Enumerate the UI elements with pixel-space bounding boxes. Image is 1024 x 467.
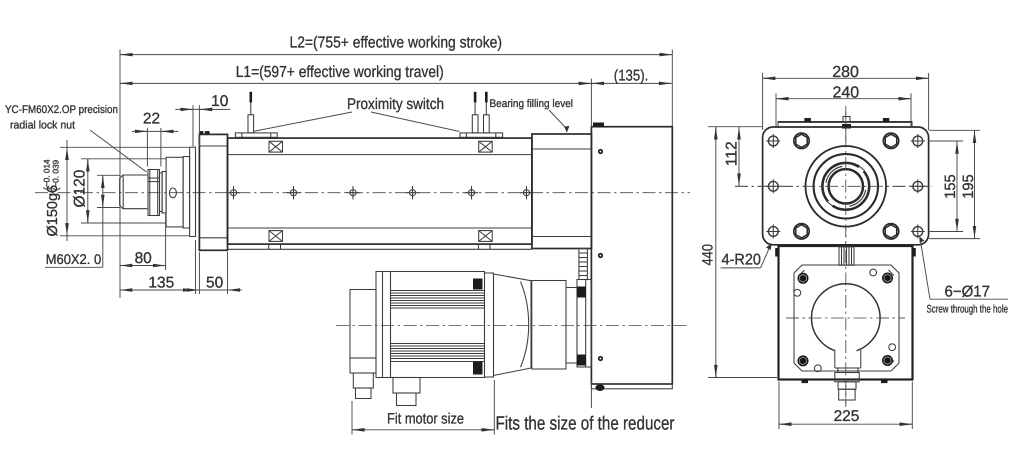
svg-text:112: 112 [724, 141, 741, 166]
svg-text:440: 440 [700, 244, 717, 266]
svg-text:225: 225 [834, 408, 860, 425]
svg-text:radial lock nut: radial lock nut [10, 120, 75, 132]
svg-text:YC-FM60X2.OP precision: YC-FM60X2.OP precision [5, 104, 118, 116]
svg-text:Ø150g6: Ø150g6 [45, 185, 61, 237]
svg-text:240: 240 [832, 84, 859, 101]
svg-text:Fits the size of the reducer: Fits the size of the reducer [496, 414, 676, 435]
svg-text:10: 10 [211, 93, 229, 110]
svg-text:Fit motor size: Fit motor size [387, 411, 464, 428]
svg-text:L2=(755+ effective working str: L2=(755+ effective working stroke) [290, 35, 503, 52]
svg-text:135: 135 [148, 274, 174, 291]
svg-text:22: 22 [143, 111, 160, 128]
svg-text:(−0. 039: (−0. 039 [51, 159, 61, 190]
svg-text:Ø120: Ø120 [72, 169, 89, 207]
svg-text:6−Ø17: 6−Ø17 [945, 284, 991, 301]
svg-text:80: 80 [135, 250, 153, 267]
svg-text:155: 155 [942, 174, 959, 199]
svg-text:(135).: (135). [614, 67, 649, 84]
svg-text:M60X2. 0: M60X2. 0 [46, 251, 102, 267]
svg-text:Proximity switch: Proximity switch [347, 96, 444, 113]
svg-text:Screw through the hole: Screw through the hole [927, 304, 1009, 316]
svg-text:195: 195 [960, 174, 977, 199]
svg-text:4-R20: 4-R20 [722, 251, 762, 268]
svg-text:Bearing filling level: Bearing filling level [490, 98, 574, 110]
svg-text:280: 280 [832, 64, 859, 81]
svg-text:50: 50 [206, 274, 224, 291]
svg-text:L1=(597+ effective working tra: L1=(597+ effective working travel) [236, 64, 444, 81]
